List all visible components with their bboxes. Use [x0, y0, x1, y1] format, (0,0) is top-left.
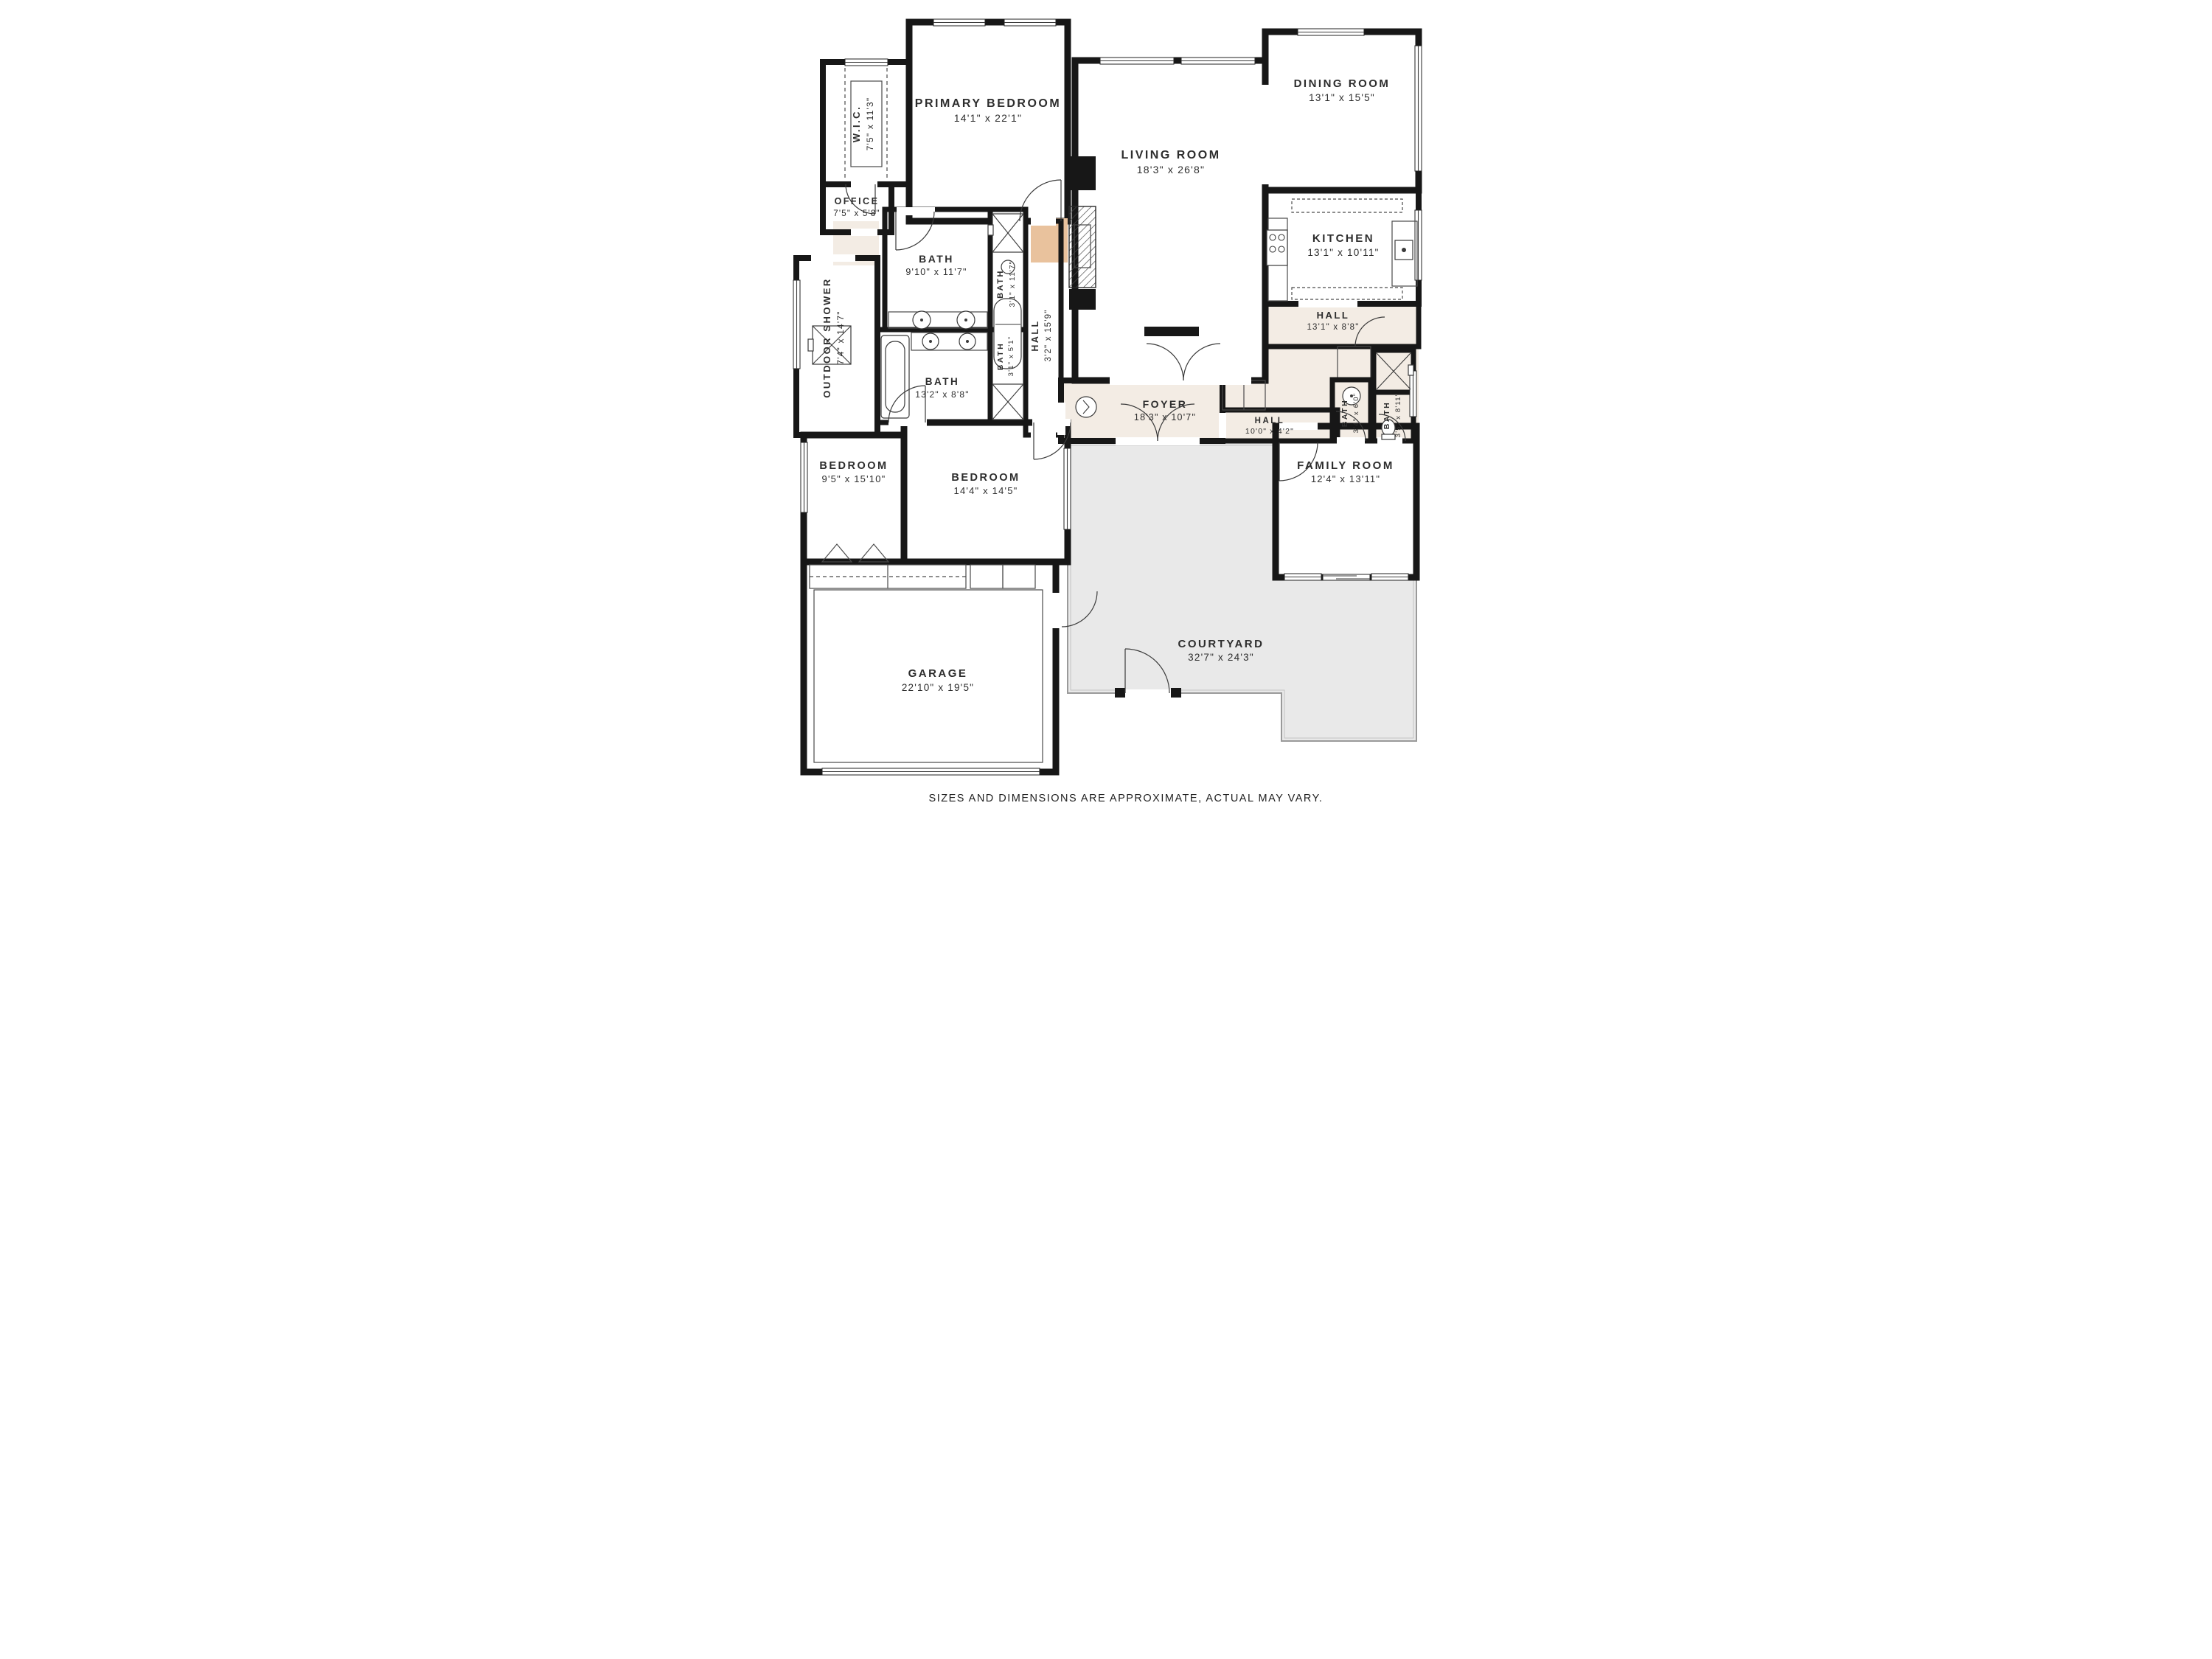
- wall-chase: [1069, 156, 1096, 190]
- room-dims: 13'2" x 8'8": [915, 389, 970, 400]
- room-label: FOYER: [1143, 398, 1188, 410]
- room-label: BATH: [1382, 401, 1391, 429]
- room-dims: 3'2" x 15'9": [1044, 309, 1053, 361]
- door-arc: [1147, 344, 1183, 380]
- floor-plan-page: W.I.C. 7'5" x 11'3" OFFICE 7'5" x 5'8" P…: [553, 0, 1659, 829]
- room-dining-room: [1265, 32, 1419, 190]
- family-room-walls: [1276, 426, 1416, 577]
- room-dims: 7'4" x 14'7": [835, 310, 846, 365]
- fireplace: [1069, 156, 1096, 310]
- room-label: BATH: [925, 376, 960, 387]
- room-label: KITCHEN: [1312, 232, 1374, 245]
- room-dims: 9'10" x 11'7": [905, 267, 967, 277]
- room-dims: 14'1" x 22'1": [954, 112, 1022, 124]
- room-dims: 3'4" x 6'0": [1352, 393, 1360, 434]
- room-bedroom-small: [804, 435, 904, 562]
- room-label: BATH: [919, 253, 954, 265]
- room-dims: 7'5" x 5'8": [833, 209, 880, 218]
- storage-cubby: [970, 565, 1003, 588]
- bedroom-small-walls: [804, 435, 904, 562]
- dining-room-walls: [1265, 32, 1419, 190]
- shower-valve-icon: [988, 225, 993, 235]
- room-label: HALL: [1255, 417, 1285, 425]
- room-dims: 12'4" x 13'11": [1311, 473, 1380, 484]
- counter-dashed: [1292, 288, 1402, 299]
- room-label: BEDROOM: [819, 460, 888, 472]
- garage-storage: [810, 544, 1035, 588]
- room-label: BATH: [996, 269, 1005, 299]
- room-label: COURTYARD: [1178, 638, 1265, 650]
- room-label: W.I.C.: [851, 105, 862, 142]
- room-dims: 7'5" x 11'3": [865, 97, 875, 151]
- shower-valve-icon: [1408, 365, 1413, 375]
- room-dims: 13'1" x 10'11": [1307, 247, 1379, 258]
- room-family-room: [1276, 426, 1416, 577]
- door-jamb: [1171, 688, 1181, 698]
- room-label: BATH: [1340, 399, 1349, 427]
- bath-13-fixtures: [881, 333, 987, 418]
- console-bar: [1144, 327, 1199, 336]
- room-label: HALL: [1030, 319, 1040, 351]
- room-label: BEDROOM: [951, 472, 1020, 484]
- door-arc: [1183, 344, 1220, 380]
- door-jamb: [1115, 688, 1125, 698]
- room-label: PRIMARY BEDROOM: [915, 97, 1061, 110]
- room-dims: 18'3" x 26'8": [1137, 164, 1205, 175]
- room-dims: 32'7" x 24'3": [1188, 652, 1254, 663]
- room-dims: 3'1" x 11'7": [1009, 261, 1017, 307]
- sliding-door-icon: [1323, 574, 1370, 580]
- room-dims: 9'5" x 15'10": [822, 473, 886, 484]
- room-label: HALL: [1317, 310, 1350, 321]
- room-label: LIVING ROOM: [1121, 149, 1220, 161]
- room-label: GARAGE: [908, 667, 968, 680]
- bath-narrow-tall-fixtures: [988, 214, 1023, 274]
- storage-cubby: [1003, 565, 1035, 588]
- room-label: OUTDOOR SHOWER: [821, 277, 832, 398]
- bath-main-vanity: [888, 311, 987, 329]
- room-label: BATH: [996, 342, 1005, 370]
- fireplace-hatch: [1069, 206, 1096, 288]
- room-dims: 13'1" x 8'8": [1307, 323, 1359, 332]
- room-dims: 18'3" x 10'7": [1134, 412, 1196, 422]
- room-dims: 13'1" x 15'5": [1309, 92, 1375, 103]
- room-dims: 14'4" x 14'5": [954, 485, 1018, 496]
- room-dims: 10'0" x 4'2": [1245, 427, 1294, 436]
- floor-plan-canvas: W.I.C. 7'5" x 11'3" OFFICE 7'5" x 5'8" P…: [553, 0, 1659, 829]
- electrical-panel-icon: [1076, 397, 1096, 417]
- room-label: FAMILY ROOM: [1297, 459, 1394, 472]
- disclaimer-text: SIZES AND DIMENSIONS ARE APPROXIMATE, AC…: [929, 793, 1324, 804]
- room-label: OFFICE: [835, 196, 880, 206]
- room-label: DINING ROOM: [1294, 77, 1391, 90]
- door-arc: [896, 212, 934, 250]
- room-dims: 3'5" x 8'11": [1394, 393, 1402, 438]
- room-dims: 3'1" x 5'1": [1007, 336, 1015, 377]
- room-dims: 22'10" x 19'5": [902, 682, 974, 693]
- shower-valve-icon: [808, 339, 813, 351]
- wall-chase: [1069, 289, 1096, 310]
